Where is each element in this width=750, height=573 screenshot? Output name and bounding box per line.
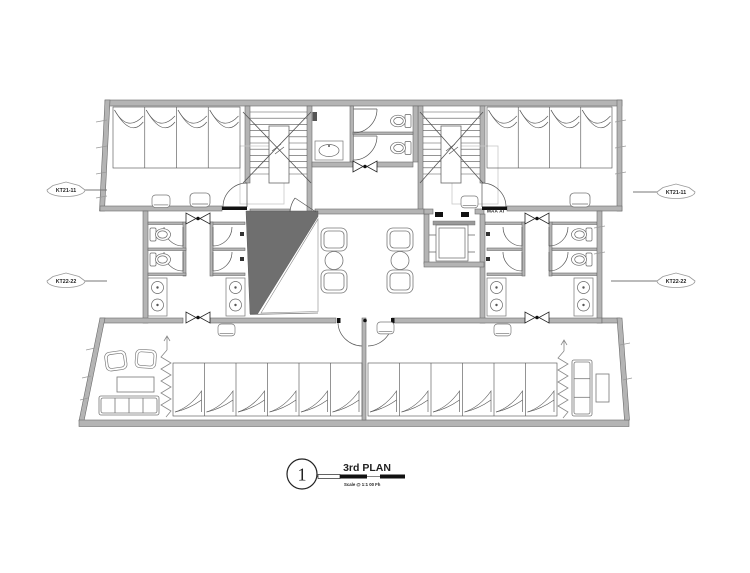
plan-title: 3rd PLAN: [343, 462, 391, 474]
detail-number: 1: [298, 465, 307, 485]
sink-icon: [578, 299, 590, 311]
coffee-table: [117, 377, 154, 392]
chair-icon: [152, 195, 170, 208]
bed-row-bottom-left: [173, 363, 362, 416]
double-door-icon: [186, 312, 210, 323]
elevator: [429, 221, 475, 261]
lounge-chair-icon: [321, 270, 347, 293]
floor-plan-drawing: KT21-11 KT22-22 KT21-11 KT22-22 MAA AI 1…: [0, 0, 750, 573]
small-plan-label: MAA AI: [487, 209, 504, 214]
sink-icon: [152, 282, 164, 294]
sink-icon: [230, 282, 242, 294]
sink-icon: [230, 299, 242, 311]
marker-label-left-top: KT21-11: [56, 188, 76, 194]
title-callout: 1 3rd PLAN Scale @ 1:1 00 Fh: [287, 459, 405, 489]
double-door-icon: [525, 213, 549, 224]
sofa-vertical: [572, 360, 592, 416]
title-bar-segment: [318, 475, 340, 479]
chair-icon: [190, 193, 210, 207]
toilet-icon: [572, 228, 593, 241]
lounge-chair-icon: [321, 228, 347, 251]
toilet-icon: [150, 228, 171, 241]
double-door-symbols: [186, 161, 549, 323]
marker-label-right-bottom: KT22-22: [666, 279, 687, 285]
door-swings: [164, 109, 568, 346]
round-table-icon: [391, 252, 409, 270]
sink-icon: [491, 282, 503, 294]
double-door-icon: [525, 312, 549, 323]
sink-icon: [578, 282, 590, 294]
plan-scale-note: Scale @ 1:1 00 Fh: [344, 482, 381, 487]
round-table-icon: [325, 252, 343, 270]
sofa-horizontal: [99, 396, 159, 415]
lounge-chair-icon: [387, 228, 413, 251]
sink-icon: [491, 299, 503, 311]
sink-icon: [152, 299, 164, 311]
double-door-icon: [186, 213, 210, 224]
floor-plan-canvas: KT21-11 KT22-22 KT21-11 KT22-22 MAA AI 1…: [0, 0, 750, 573]
marker-label-left-bottom: KT22-22: [56, 279, 77, 285]
furniture: [99, 193, 609, 416]
armchair-icon: [135, 349, 157, 369]
angled-wall-wedge: [246, 211, 318, 315]
chair-icon: [494, 324, 511, 336]
side-table: [596, 374, 609, 402]
chair-icon: [218, 324, 235, 336]
marker-label-right-top: KT21-11: [666, 190, 686, 196]
stair-left: [240, 112, 311, 204]
chair-icon: [461, 196, 478, 208]
bed-row-bottom-right: [368, 363, 557, 416]
title-bar-segment: [380, 475, 405, 479]
title-bar-segment: [340, 475, 367, 479]
toilet-icon: [150, 253, 171, 266]
double-door-icon: [353, 161, 377, 172]
toilet-icon: [391, 142, 412, 155]
lounge-chair-icon: [387, 270, 413, 293]
armchair-icon: [104, 350, 128, 372]
toilet-icon: [572, 253, 593, 266]
toilet-icon: [391, 115, 412, 128]
stair-landing: [269, 126, 289, 183]
bed-row-top-left: [113, 107, 240, 168]
chair-icon: [570, 193, 590, 207]
bed-row-top-right: [487, 107, 612, 168]
stair-right: [420, 112, 498, 204]
chair-icon: [377, 322, 394, 334]
